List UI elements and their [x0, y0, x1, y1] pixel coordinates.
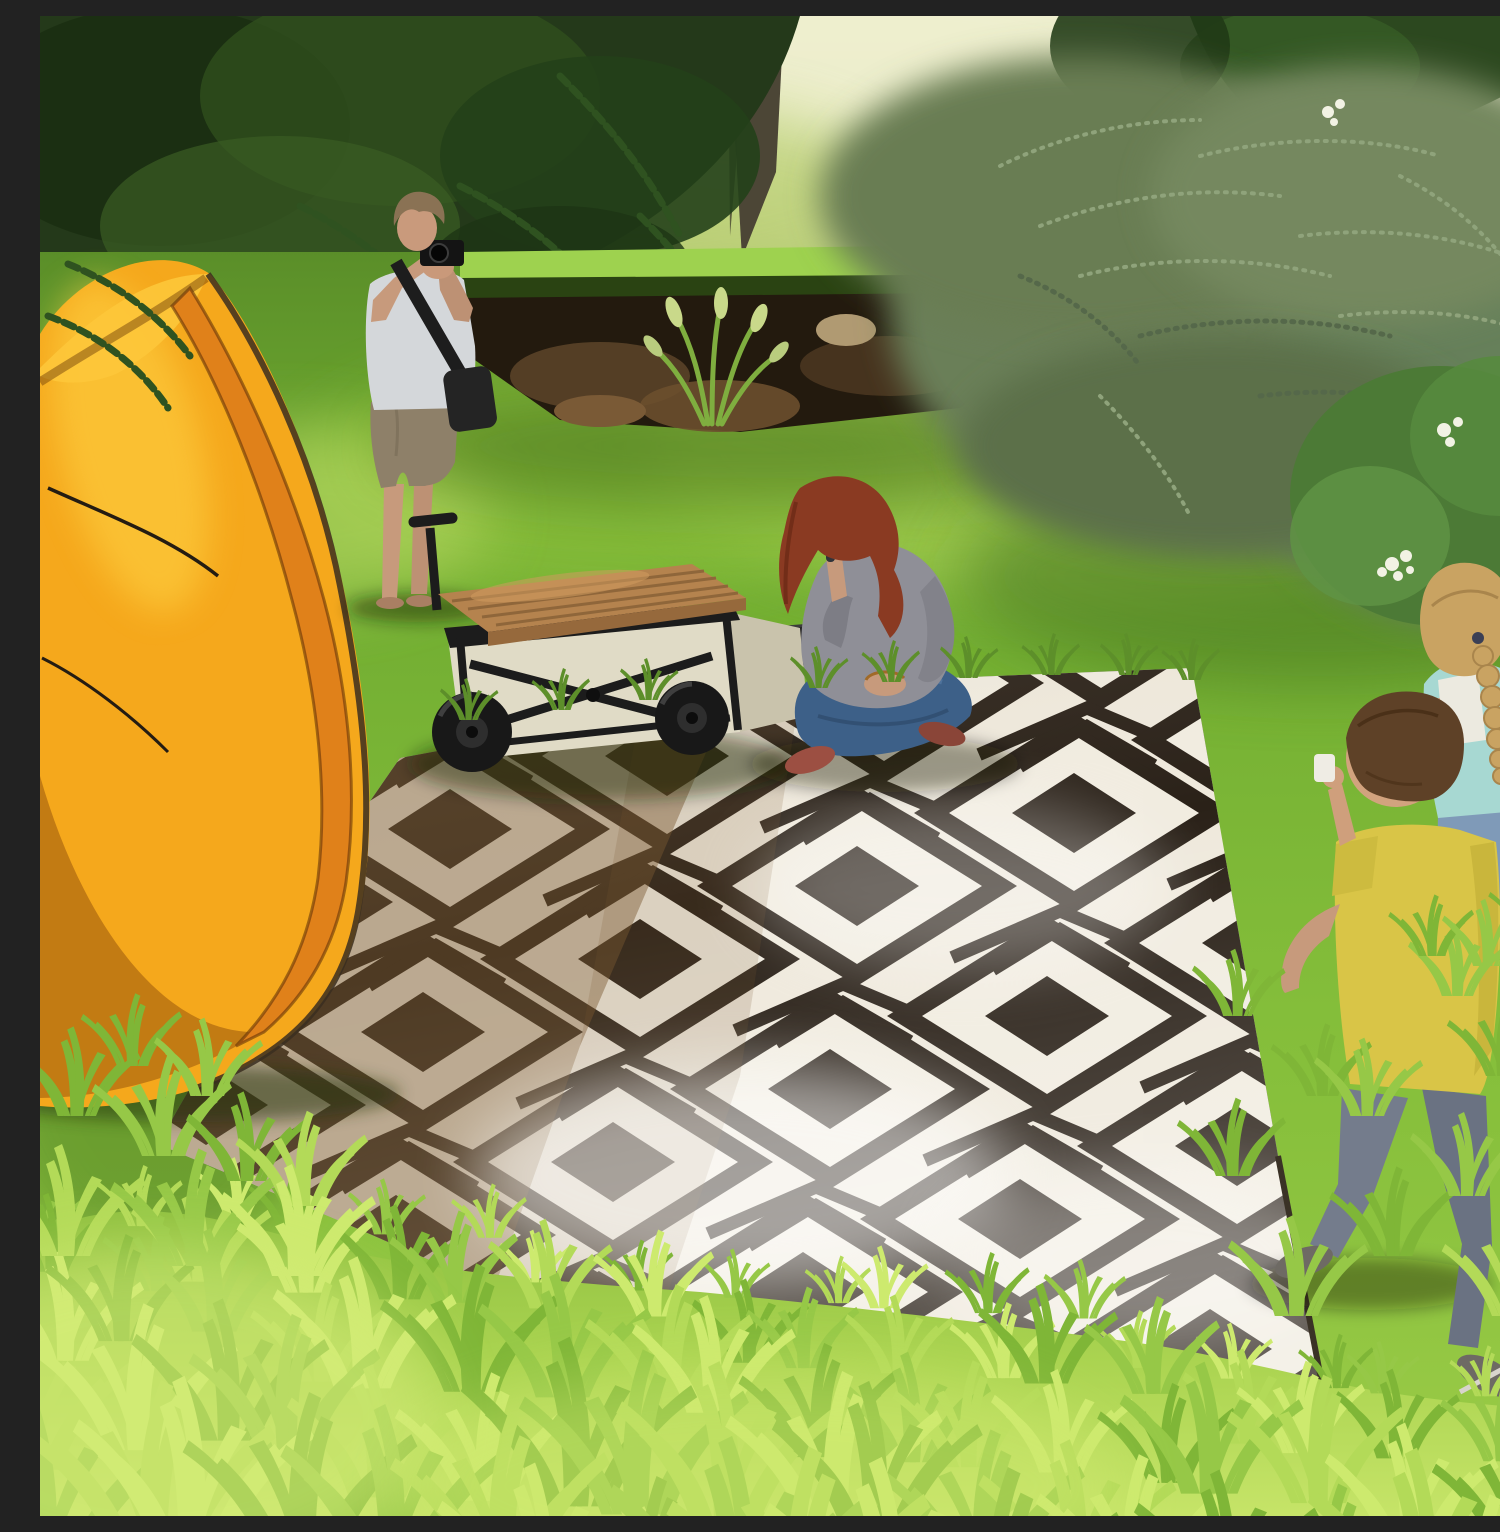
wagon-handle-grip [414, 518, 452, 522]
white-cup [1314, 754, 1335, 782]
rock [554, 395, 646, 427]
hair-tie [1472, 632, 1484, 644]
rock [816, 314, 876, 346]
photographer-shorts [370, 398, 459, 488]
boy-sleeve [1332, 836, 1378, 896]
scene-canvas [40, 16, 1500, 1516]
camera-lens [430, 244, 448, 262]
wagon-front-right-wheel [655, 681, 729, 755]
shoulder-bag [442, 365, 498, 433]
campsite-photo [40, 16, 1500, 1516]
